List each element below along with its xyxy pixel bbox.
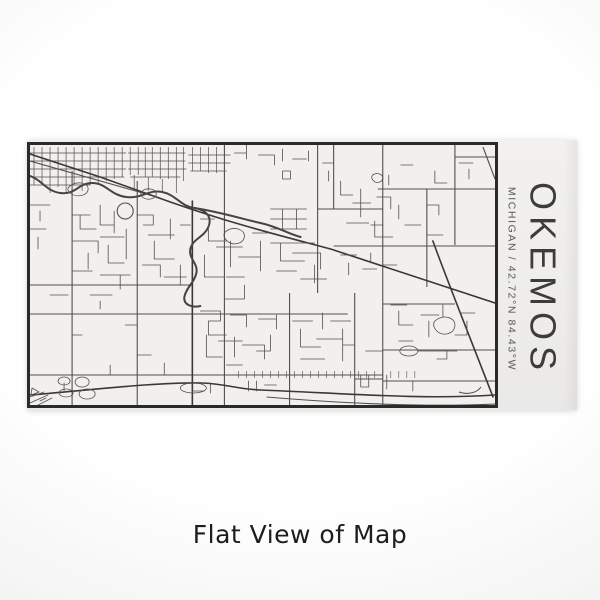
product-subtitle: MICHIGAN / 42.72°N 84.43°W	[504, 182, 518, 376]
ponds	[58, 377, 95, 399]
product-photo-background: OKEMOS MICHIGAN / 42.72°N 84.43°W Flat V…	[0, 0, 600, 600]
river	[30, 176, 301, 307]
okemos-street-map	[30, 145, 495, 405]
map-border-frame	[27, 142, 498, 408]
map-wrap-card: OKEMOS MICHIGAN / 42.72°N 84.43°W	[27, 140, 577, 410]
side-text: OKEMOS MICHIGAN / 42.72°N 84.43°W	[504, 182, 561, 376]
interchange-wedge	[30, 388, 52, 405]
subdivision-streets	[30, 145, 475, 393]
view-caption: Flat View of Map	[0, 520, 600, 549]
product-title: OKEMOS	[523, 182, 561, 376]
side-text-panel: OKEMOS MICHIGAN / 42.72°N 84.43°W	[498, 140, 577, 410]
major-roads	[30, 147, 495, 405]
